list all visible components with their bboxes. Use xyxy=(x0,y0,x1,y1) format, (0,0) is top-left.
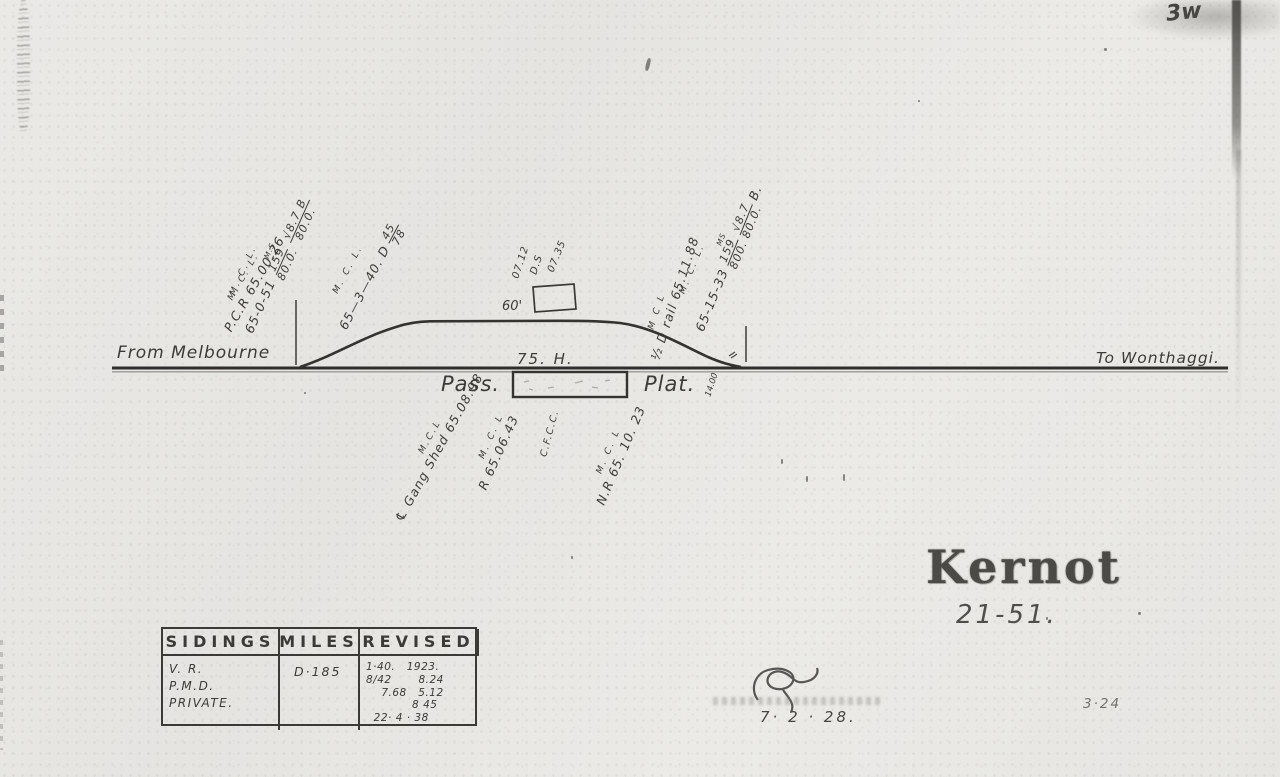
shed-outline xyxy=(533,284,576,312)
plan-number: 21-51. xyxy=(956,600,1058,630)
table-row: P.M.D. xyxy=(169,678,272,695)
station-name-stamp: Kernot xyxy=(926,540,1122,594)
table-cell-sidings: V. R. P.M.D. PRIVATE. xyxy=(163,656,280,730)
revision-entry: 1·40. 1923. xyxy=(366,661,473,674)
sheet-number: 3·24 xyxy=(1083,696,1121,712)
ink-speck xyxy=(918,100,920,102)
revision-entry: 7.68 5.12 xyxy=(366,687,473,700)
from-melbourne-label: From Melbourne xyxy=(117,343,270,363)
ink-speck xyxy=(781,459,783,464)
pencil-marks xyxy=(524,380,610,390)
miles-value: D·185 xyxy=(286,661,352,679)
platform-plat-label: Plat. xyxy=(644,372,695,396)
points-mark xyxy=(729,352,737,358)
revision-entry: 8/42 8.24 xyxy=(366,674,473,687)
revision-entry: 8 45 xyxy=(366,699,473,712)
table-header-revised: REVISED xyxy=(360,629,479,656)
corner-handwriting: 3w xyxy=(1165,0,1203,27)
table-row: V. R. xyxy=(169,661,272,678)
ink-speck xyxy=(1046,617,1048,620)
sidings-table: SIDINGS MILES REVISED V. R. P.M.D. PRIVA… xyxy=(161,627,477,726)
ink-speck xyxy=(843,474,845,481)
loop-length-label: 75. H. xyxy=(517,350,574,368)
ink-speck xyxy=(571,556,573,559)
revision-entry: 22· 4 · 38 xyxy=(366,712,473,725)
approval-date: 7· 2 · 28. xyxy=(760,708,857,726)
shed-size-label: 60' xyxy=(502,299,522,314)
table-cell-revised: 1·40. 1923. 8/42 8.24 7.68 5.12 8 45 22·… xyxy=(360,656,479,730)
ink-speck xyxy=(1104,48,1107,51)
ink-speck xyxy=(304,392,306,394)
table-row: PRIVATE. xyxy=(169,695,272,712)
table-header-sidings: SIDINGS xyxy=(163,629,280,656)
signature-scrawl xyxy=(754,668,818,712)
platform-outline xyxy=(513,372,627,397)
ink-speck xyxy=(1138,612,1141,615)
faded-office-stamp xyxy=(713,697,881,705)
ink-speck xyxy=(806,476,808,482)
to-wonthaggi-label: To Wonthaggi. xyxy=(1096,349,1220,367)
scanned-siding-diagram: From Melbourne To Wonthaggi. 75. H. Pass… xyxy=(0,0,1280,777)
table-header-miles: MILES xyxy=(280,629,360,656)
table-cell-miles: D·185 xyxy=(280,656,360,730)
